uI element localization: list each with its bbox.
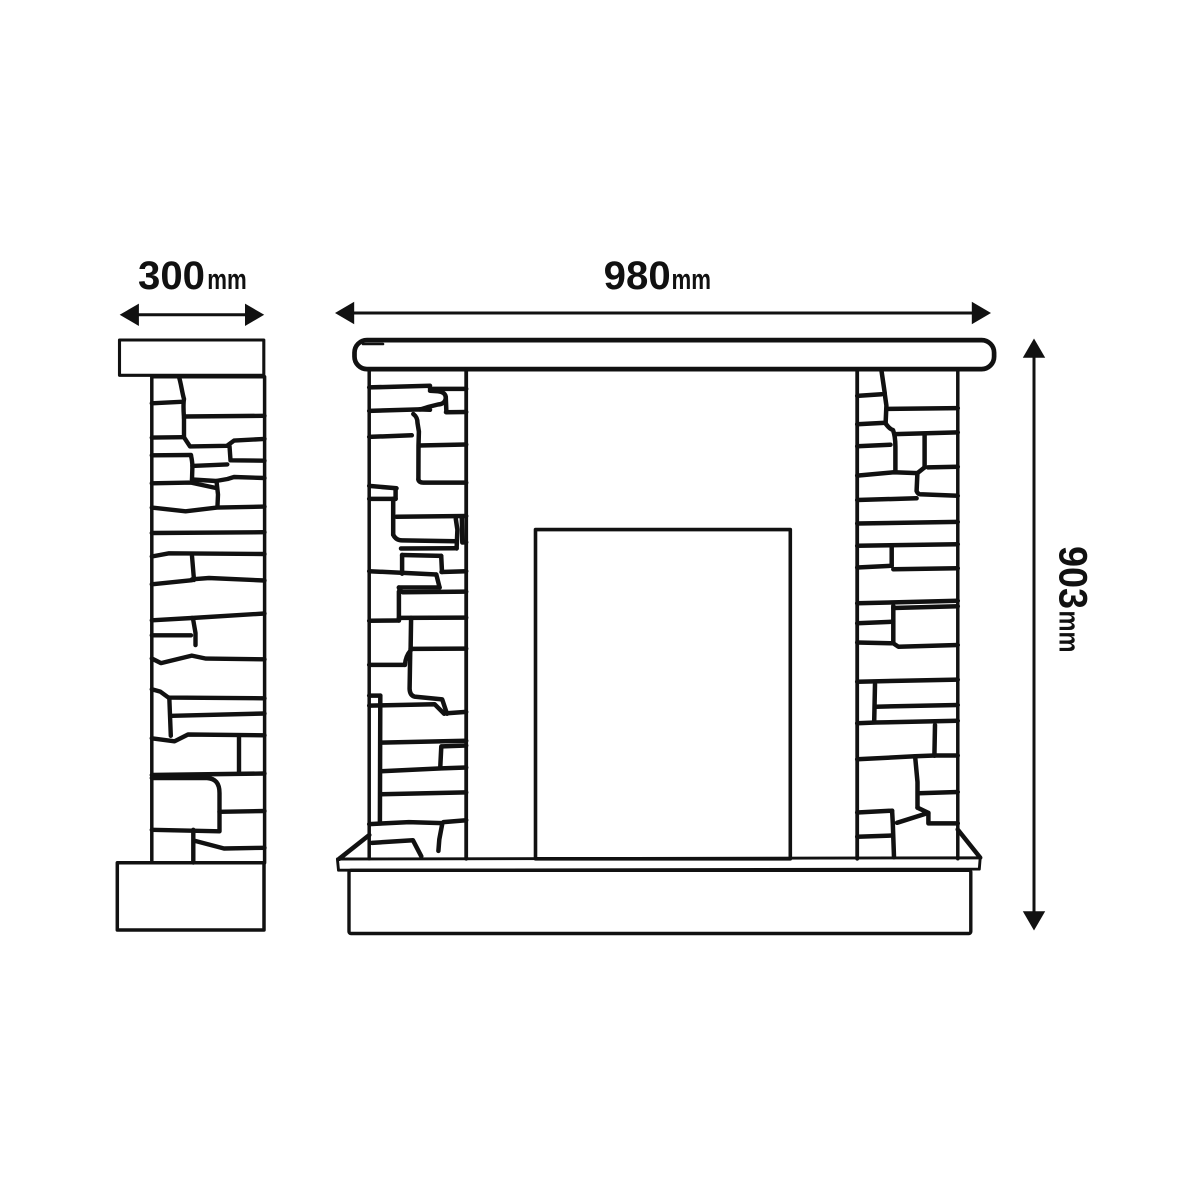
svg-text:mm: mm [672, 264, 712, 296]
svg-text:980: 980 [604, 254, 671, 298]
svg-text:mm: mm [1053, 611, 1085, 653]
svg-text:300: 300 [138, 254, 205, 298]
svg-text:903: 903 [1051, 546, 1095, 609]
svg-text:mm: mm [207, 264, 247, 296]
